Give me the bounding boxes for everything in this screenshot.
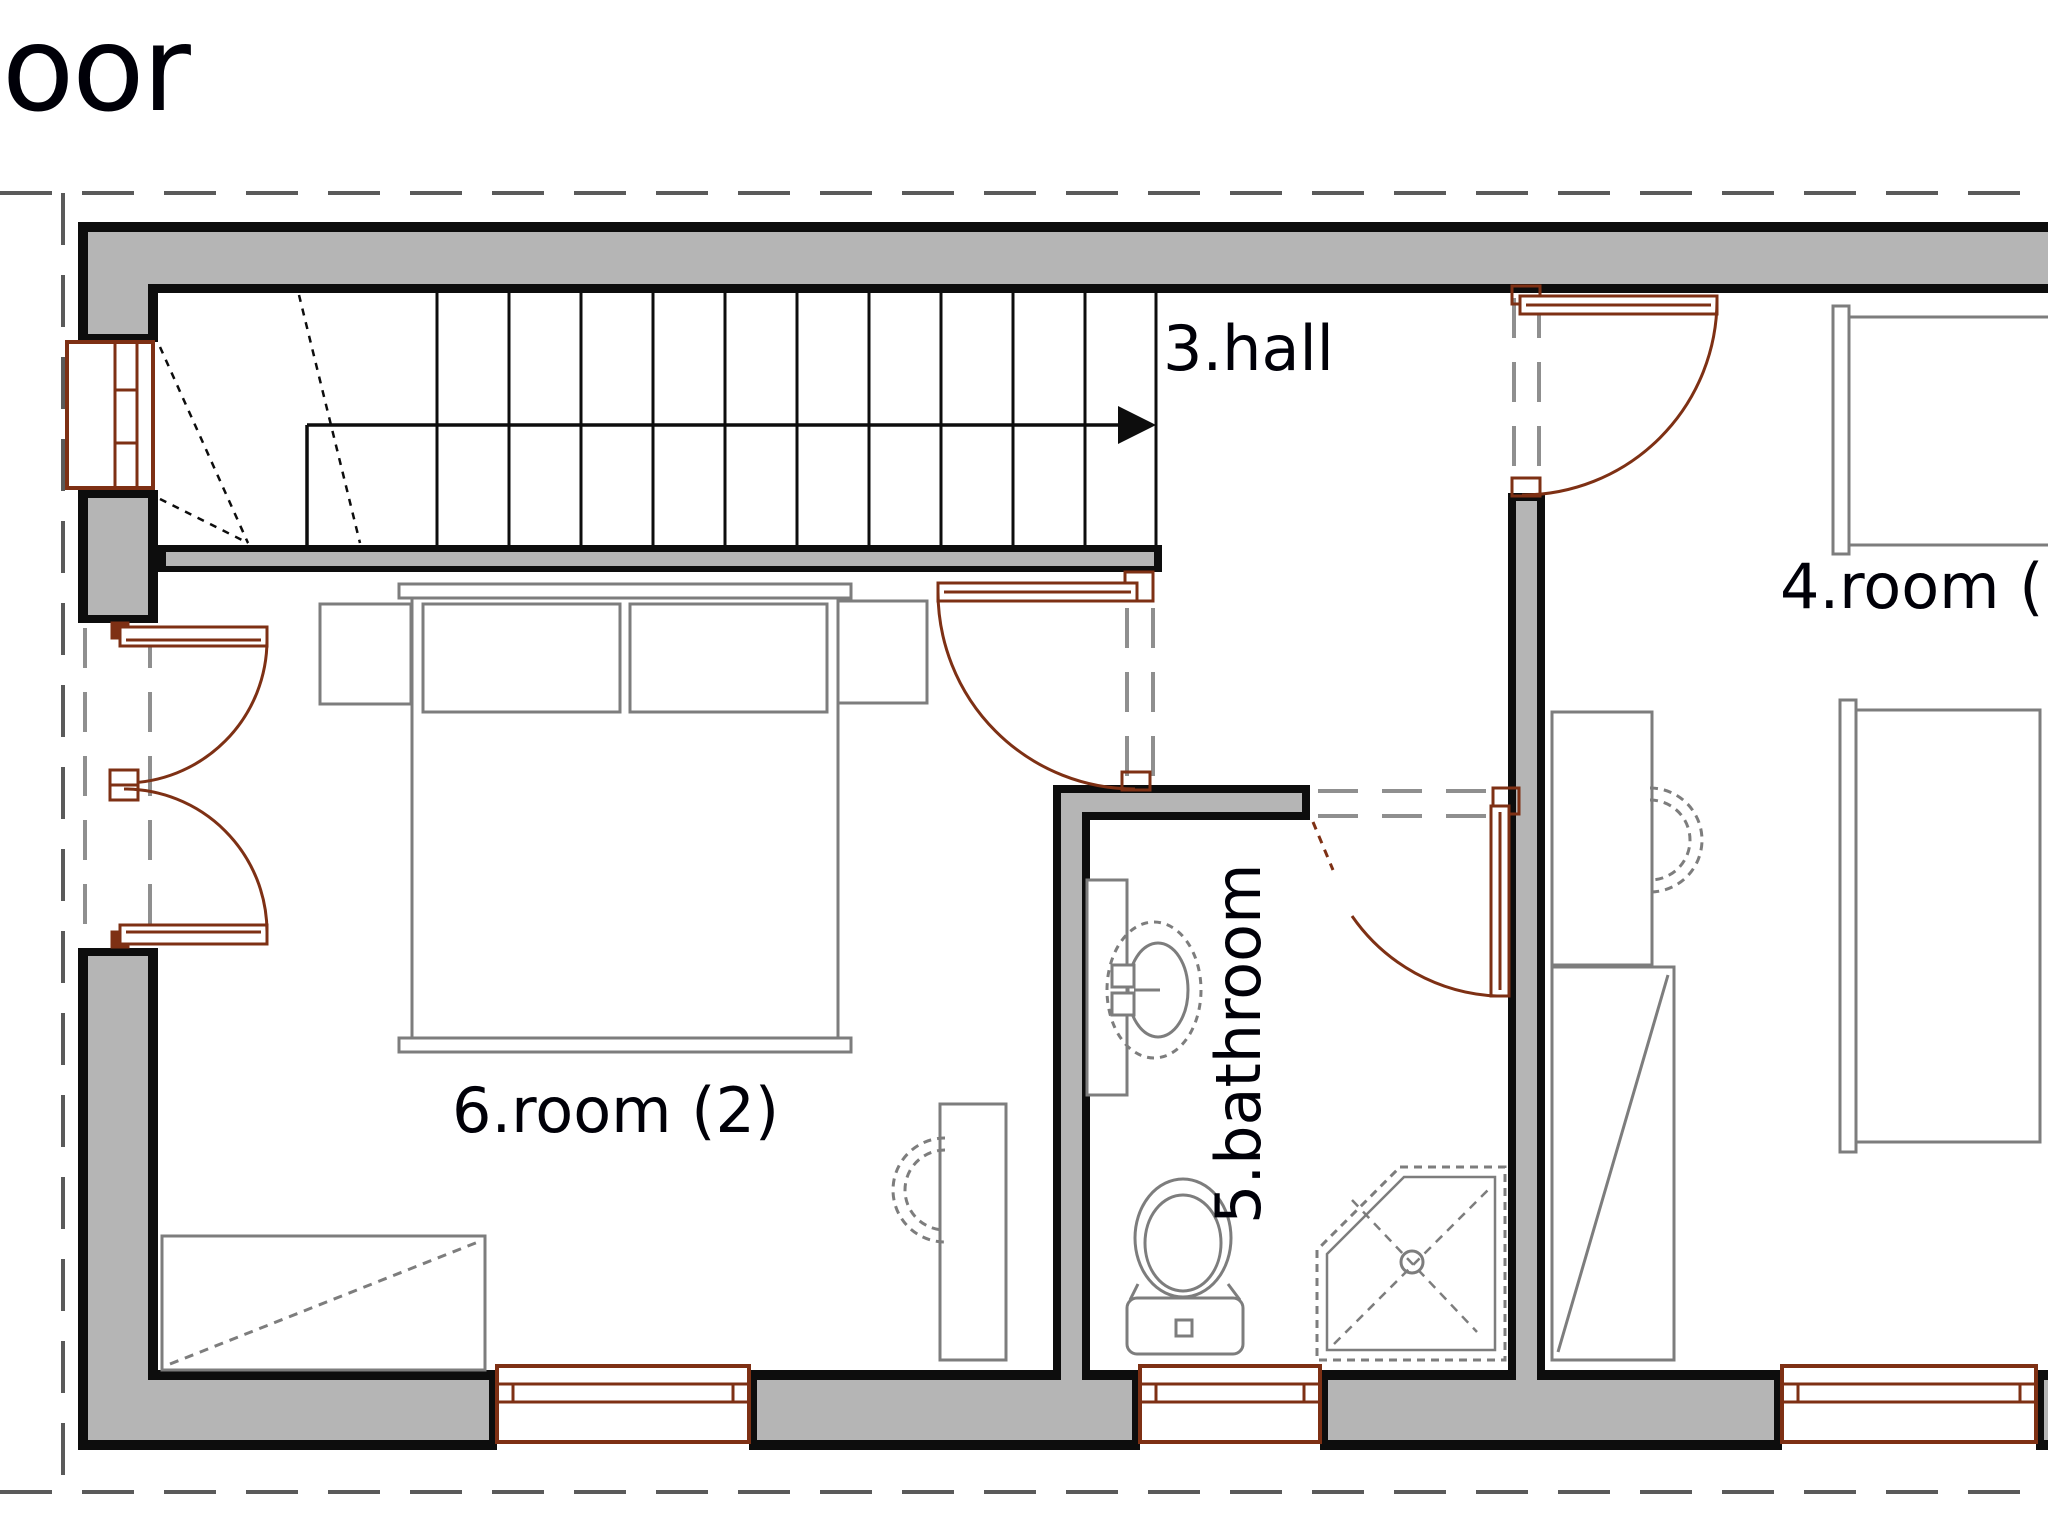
double-door-left-wall xyxy=(110,623,267,947)
page-title: oor xyxy=(2,8,189,132)
room-label-room6: 6.room (2) xyxy=(452,1078,779,1143)
single-bed-top xyxy=(1849,317,2048,545)
nightstand-left xyxy=(320,604,411,704)
floor-plan-canvas: oor 3.hall 4.room ( 6.room (2) 5.bathroo… xyxy=(0,0,2048,1536)
chair-room4 xyxy=(1650,788,1702,892)
room6-furniture xyxy=(162,584,1006,1370)
door-hall-to-bathroom xyxy=(1313,788,1519,996)
bed-bottom-headboard xyxy=(1840,700,1856,1152)
corner-shower xyxy=(1317,1167,1505,1360)
wall-cores xyxy=(88,232,2048,1440)
room-label-bathroom: 5.bathroom xyxy=(1206,864,1271,1225)
stair-flight-divider xyxy=(307,425,1118,545)
desk-room6 xyxy=(940,1104,1006,1360)
bed-top-headboard xyxy=(1833,306,1849,554)
window-bottom-room4 xyxy=(1782,1366,2036,1442)
room-label-room4: 4.room ( xyxy=(1780,554,2043,619)
rug xyxy=(162,1236,485,1370)
bed-headboard xyxy=(399,584,851,598)
stair-treads xyxy=(437,293,1156,545)
stair-direction-arrow xyxy=(1118,406,1156,444)
pillow-right xyxy=(630,604,827,712)
bed-footboard xyxy=(399,1038,851,1052)
window-bottom-bathroom xyxy=(1140,1366,1320,1442)
door-hall-to-room4 xyxy=(1512,286,1717,496)
windows xyxy=(67,342,2036,1442)
window-bottom-room6 xyxy=(497,1366,749,1442)
single-bed-bottom xyxy=(1856,710,2040,1142)
window-left-wall xyxy=(67,342,153,488)
bathroom-fixtures xyxy=(1087,880,1505,1360)
door-hall-to-room6 xyxy=(938,572,1153,790)
stair-winder-lines xyxy=(160,295,360,543)
staircase xyxy=(160,293,1156,545)
chair-room6 xyxy=(893,1138,945,1242)
site-boundary-dashed-line xyxy=(0,193,2048,1492)
wardrobe-room4 xyxy=(1552,967,1674,1360)
desk-room4 xyxy=(1552,712,1652,965)
room-label-hall: 3.hall xyxy=(1163,316,1334,381)
pillow-left xyxy=(423,604,620,712)
nightstand-right xyxy=(838,601,927,703)
